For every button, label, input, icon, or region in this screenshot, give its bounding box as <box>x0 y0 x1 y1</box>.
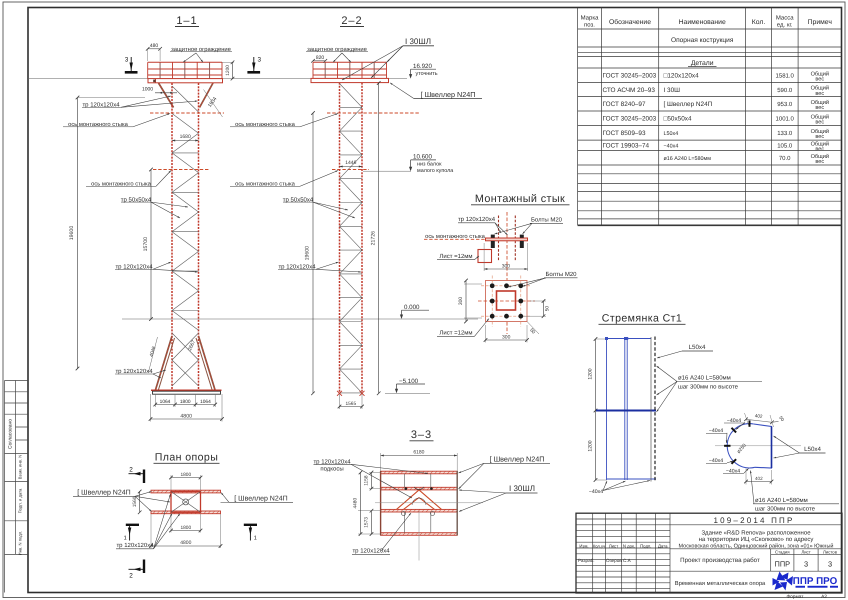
svg-text:вес: вес <box>815 134 824 140</box>
svg-text:Проект производства работ: Проект производства работ <box>680 557 760 564</box>
svg-text:[ Швеллер N24П: [ Швеллер N24П <box>77 489 130 497</box>
svg-text:Лист =12мм: Лист =12мм <box>439 330 472 337</box>
svg-text:тр 120х120х4: тр 120х120х4 <box>352 548 390 555</box>
svg-text:2: 2 <box>129 573 133 580</box>
svg-text:Кол.: Кол. <box>752 19 766 26</box>
svg-text:Стремянка Ст1: Стремянка Ст1 <box>602 313 682 325</box>
svg-text:1–1: 1–1 <box>176 15 197 27</box>
svg-text:820: 820 <box>316 55 325 61</box>
svg-text:1000: 1000 <box>142 87 153 93</box>
svg-text:Инв. N подл.: Инв. N подл. <box>18 531 23 556</box>
svg-text:[ Швеллер N24П: [ Швеллер N24П <box>421 90 476 99</box>
svg-text:70.0: 70.0 <box>779 155 791 162</box>
svg-text:подкосы: подкосы <box>320 466 343 472</box>
svg-text:ГОСТ 8240–97: ГОСТ 8240–97 <box>603 101 646 108</box>
svg-text:3: 3 <box>258 57 262 64</box>
svg-text:шаг 300мм по высоте: шаг 300мм по высоте <box>755 506 816 513</box>
svg-text:Опорная кострукция: Опорная кострукция <box>671 37 734 44</box>
svg-text:1001.0: 1001.0 <box>776 116 795 123</box>
svg-text:ГОСТ 19903–74: ГОСТ 19903–74 <box>603 143 650 150</box>
svg-text:ось монтажного стыка: ось монтажного стыка <box>235 182 295 188</box>
svg-text:4800: 4800 <box>180 540 191 546</box>
svg-text:105.0: 105.0 <box>777 143 793 150</box>
svg-text:1064: 1064 <box>200 399 211 405</box>
svg-text:вес: вес <box>815 159 824 165</box>
svg-text:Разраб.: Разраб. <box>578 558 595 563</box>
svg-text:1565: 1565 <box>345 401 356 407</box>
svg-text:I 30Ш: I 30Ш <box>664 87 681 94</box>
svg-text:вес: вес <box>815 120 824 126</box>
svg-text:1581.0: 1581.0 <box>776 73 795 80</box>
svg-text:Лист: Лист <box>801 549 810 554</box>
svg-text:−40х4: −40х4 <box>589 489 603 495</box>
svg-text:300: 300 <box>458 297 464 306</box>
svg-text:Подп.: Подп. <box>640 543 651 548</box>
svg-text:Болты М20: Болты М20 <box>531 217 563 224</box>
svg-text:вес: вес <box>815 77 824 83</box>
svg-text:Кол.уч: Кол.уч <box>593 543 605 548</box>
svg-text:1446: 1446 <box>345 160 356 166</box>
svg-text:ед. кг.: ед. кг. <box>777 22 793 28</box>
svg-text:Лист: Лист <box>609 543 618 548</box>
svg-text:300: 300 <box>502 334 511 340</box>
svg-text:Подп. и дата: Подп. и дата <box>18 488 23 513</box>
svg-text:низ балок: низ балок <box>417 162 442 168</box>
svg-text:[ Швеллер N24П: [ Швеллер N24П <box>664 101 713 108</box>
svg-text:133.0: 133.0 <box>777 130 793 137</box>
svg-text:1158: 1158 <box>364 475 370 486</box>
svg-text:[ Швеллер N24П: [ Швеллер N24П <box>490 455 545 464</box>
svg-text:Изм.: Изм. <box>579 543 588 548</box>
svg-text:Московская область, Одинцовски: Московская область, Одинцовский район, з… <box>679 542 834 549</box>
svg-text:Наименование: Наименование <box>679 19 726 26</box>
svg-text:[ Швеллер N24П: [ Швеллер N24П <box>234 495 287 503</box>
svg-text:15700: 15700 <box>143 237 149 252</box>
svg-text:Дата: Дата <box>658 543 668 548</box>
svg-text:2–2: 2–2 <box>341 15 362 27</box>
svg-text:поз.: поз. <box>584 22 595 28</box>
svg-text:L50х4: L50х4 <box>689 344 706 351</box>
svg-text:590.0: 590.0 <box>777 87 793 94</box>
svg-text:I 30ШЛ: I 30ШЛ <box>509 484 535 493</box>
svg-text:Озеров С.А: Озеров С.А <box>606 558 632 563</box>
svg-text:Лист =12мм: Лист =12мм <box>439 253 472 260</box>
svg-text:на территории ИЦ «Сколково» по: на территории ИЦ «Сколково» по адресу <box>699 536 814 543</box>
svg-text:6180: 6180 <box>413 449 424 455</box>
svg-text:ось монтажного стыка: ось монтажного стыка <box>425 234 485 240</box>
svg-text:Временная металлическая опора: Временная металлическая опора <box>675 581 766 587</box>
svg-text:ø16 А240 L=580мм: ø16 А240 L=580мм <box>664 156 712 162</box>
svg-text:I 30ШЛ: I 30ШЛ <box>405 37 431 46</box>
svg-text:480: 480 <box>150 43 159 49</box>
svg-text:1800: 1800 <box>180 525 191 531</box>
svg-text:ø16 А240 L=580мм: ø16 А240 L=580мм <box>678 375 731 382</box>
svg-text:953.0: 953.0 <box>777 101 793 108</box>
svg-text:Обозначение: Обозначение <box>609 19 651 26</box>
svg-text:Листов: Листов <box>823 549 838 554</box>
svg-text:Детали: Детали <box>691 60 714 67</box>
svg-text:19600: 19600 <box>69 226 75 241</box>
svg-text:ось монтажного стыка: ось монтажного стыка <box>235 122 295 128</box>
svg-text:защитное ограждение: защитное ограждение <box>171 47 231 53</box>
svg-text:21726: 21726 <box>370 231 376 246</box>
svg-text:19600: 19600 <box>304 246 310 261</box>
svg-text:50: 50 <box>545 306 551 312</box>
svg-text:□50х50х4: □50х50х4 <box>664 116 692 123</box>
svg-text:ППР ПРО: ППР ПРО <box>793 576 838 587</box>
svg-text:4480: 4480 <box>353 498 359 509</box>
svg-text:4800: 4800 <box>180 413 192 419</box>
svg-text:Формат: Формат <box>786 594 804 600</box>
svg-text:Согласовано: Согласовано <box>8 419 14 449</box>
svg-text:1800: 1800 <box>180 472 191 478</box>
svg-text:ППР: ППР <box>775 560 791 569</box>
svg-text:L50х4: L50х4 <box>804 446 821 453</box>
svg-text:1: 1 <box>254 536 257 542</box>
svg-text:1573: 1573 <box>364 517 370 528</box>
svg-text:3–3: 3–3 <box>411 429 432 441</box>
svg-text:402: 402 <box>755 476 763 481</box>
svg-text:А2: А2 <box>821 594 827 600</box>
svg-text:вес: вес <box>815 105 824 111</box>
svg-text:Масса: Масса <box>776 15 794 22</box>
svg-text:вес: вес <box>815 147 824 153</box>
svg-text:защитное ограждение: защитное ограждение <box>307 47 367 53</box>
svg-text:ГОСТ 30245–2003: ГОСТ 30245–2003 <box>603 116 657 123</box>
svg-text:малого купола: малого купола <box>417 168 453 174</box>
svg-text:Марка: Марка <box>581 15 599 22</box>
svg-text:1680: 1680 <box>180 134 191 140</box>
svg-text:1064: 1064 <box>160 399 171 405</box>
svg-text:300: 300 <box>502 263 511 269</box>
svg-text:109–2014 ППР: 109–2014 ППР <box>713 516 794 525</box>
svg-text:План опоры: План опоры <box>155 452 219 464</box>
svg-text:шаг 300мм по высоте: шаг 300мм по высоте <box>678 383 739 390</box>
svg-text:тр 120х120х4: тр 120х120х4 <box>116 542 154 549</box>
svg-text:Стадия: Стадия <box>775 549 790 554</box>
svg-text:1: 1 <box>124 536 127 542</box>
svg-text:□120х120х4: □120х120х4 <box>664 73 700 80</box>
svg-text:N док.: N док. <box>623 543 635 548</box>
svg-text:тр 120х120х4: тр 120х120х4 <box>458 216 496 223</box>
svg-text:2: 2 <box>129 467 133 474</box>
svg-text:3: 3 <box>828 560 832 569</box>
svg-text:L50х4: L50х4 <box>664 131 679 137</box>
svg-text:Примеч: Примеч <box>808 19 833 26</box>
svg-text:Болты М20: Болты М20 <box>545 271 577 278</box>
svg-text:ось монтажного стыка: ось монтажного стыка <box>68 122 128 128</box>
svg-text:402: 402 <box>755 413 764 419</box>
svg-text:СТО АСЧМ 20–93: СТО АСЧМ 20–93 <box>603 87 656 94</box>
svg-text:ГОСТ 8509–93: ГОСТ 8509–93 <box>603 130 646 137</box>
svg-text:3: 3 <box>125 57 129 64</box>
svg-text:Взам. инв. N: Взам. инв. N <box>18 455 23 479</box>
svg-text:3: 3 <box>804 560 808 569</box>
svg-text:Здание «R&D Renova» расположен: Здание «R&D Renova» расположенное <box>701 530 811 537</box>
svg-text:вес: вес <box>815 91 824 97</box>
svg-text:1200: 1200 <box>588 368 594 379</box>
svg-text:ГОСТ 30245–2003: ГОСТ 30245–2003 <box>603 73 657 80</box>
svg-text:1800: 1800 <box>180 399 191 405</box>
svg-text:1200: 1200 <box>588 440 594 451</box>
svg-text:уточнить: уточнить <box>416 71 438 77</box>
svg-text:Монтажный стык: Монтажный стык <box>475 193 565 205</box>
svg-text:ø16 А240 L=580мм: ø16 А240 L=580мм <box>755 497 808 504</box>
svg-text:ось монтажного стыка: ось монтажного стыка <box>91 182 151 188</box>
svg-text:1200: 1200 <box>225 65 231 76</box>
svg-text:−40х4: −40х4 <box>664 144 679 150</box>
